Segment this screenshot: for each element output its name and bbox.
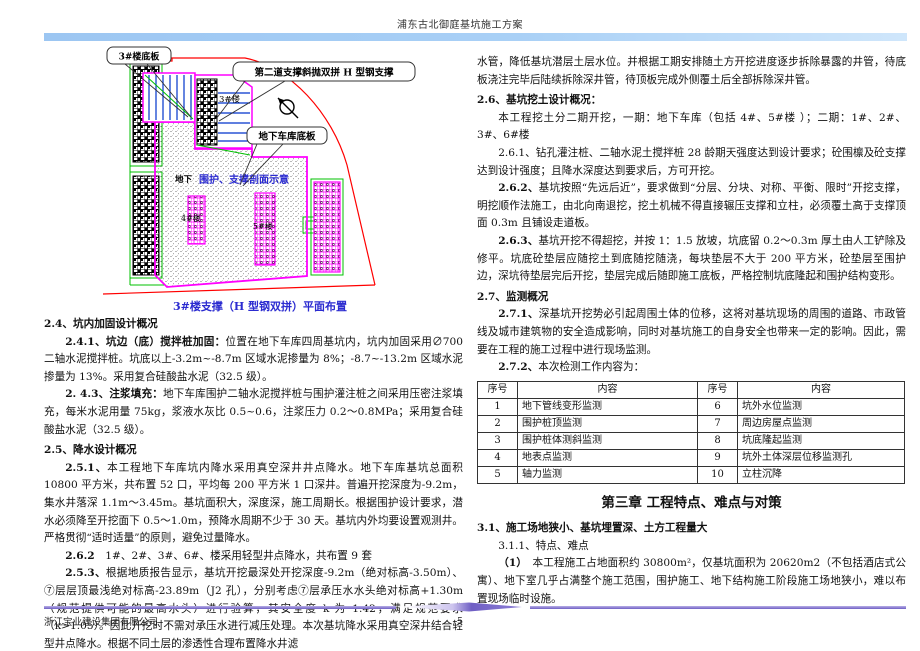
section-3-1-heading: 3.1、施工场地狭小、基坑埋置深、土方工程量大 bbox=[477, 520, 906, 538]
table-row: 5 轴力监测 10 立柱沉降 bbox=[478, 466, 905, 483]
col-header-content-2: 内容 bbox=[738, 381, 905, 398]
cell: 周边房屋点监测 bbox=[738, 415, 905, 432]
cell: 2 bbox=[478, 415, 518, 432]
right-column: 水管，降低基坑潜层土层水位。并根据工期安排随土方开挖进度逐步拆除暴露的井管，待底… bbox=[477, 54, 906, 608]
para-2-6-3-label: 2.6.3、 bbox=[498, 235, 538, 247]
cell: 10 bbox=[698, 466, 738, 483]
table-row: 4 地表点监测 9 坑外土体深层位移监测孔 bbox=[478, 449, 905, 466]
para-2-6-2-left-label: 2.6.2 bbox=[65, 550, 95, 562]
para-2-6-intro: 本工程挖土分二期开挖，一期：地下车库（包括 4#、5#楼 ）；二期：1#、2#、… bbox=[477, 110, 906, 145]
para-2-7-1: 2.7.1、深基坑开挖势必引起周围土体的位移，这将对基坑现场的周围的道路、市政管… bbox=[477, 306, 906, 359]
cell: 4 bbox=[478, 449, 518, 466]
header-accent-bar bbox=[44, 33, 907, 41]
cell: 围护桩体测斜监测 bbox=[518, 432, 698, 449]
col-header-content-1: 内容 bbox=[518, 381, 698, 398]
para-2-7-1-text: 深基坑开挖势必引起周围土体的位移，这将对基坑现场的周围的道路、市政管线及城市建筑… bbox=[477, 308, 906, 355]
header-title: 浦东古北御庭基坑施工方案 bbox=[0, 16, 920, 31]
cell: 地表点监测 bbox=[518, 449, 698, 466]
table-row: 1 地下管线变形监测 6 坑外水位监测 bbox=[478, 398, 905, 415]
para-2-6-2-text: 基坑按照“先远后近”，要求做到“分层、分块、对称、平衡、限时”开挖支撑，明挖顺作… bbox=[477, 182, 906, 229]
para-2-6-2-left: 2.6.2 1#、2#、3#、6#、楼采用轻型井点降水，共布置 9 套 bbox=[44, 548, 463, 566]
para-2-7-2-label: 2.7.2、 bbox=[498, 361, 538, 373]
para-2-6-1-text: 钻孔灌注桩、二轴水泥土搅拌桩 28 龄期天强度达到设计要求；砼围檩及砼支撑达到设… bbox=[477, 147, 906, 177]
col-header-no-2: 序号 bbox=[698, 381, 738, 398]
para-2-6-1: 2.6.1、钻孔灌注桩、二轴水泥土搅拌桩 28 龄期天强度达到设计要求；砼围檩及… bbox=[477, 145, 906, 180]
para-2-6-2-label: 2.6.2、 bbox=[498, 182, 538, 194]
para-2-6-2-left-text: 1#、2#、3#、6#、楼采用轻型井点降水，共布置 9 套 bbox=[95, 550, 372, 562]
cell: 地下管线变形监测 bbox=[518, 398, 698, 415]
section-2-4-heading: 2.4、坑内加固设计概况 bbox=[44, 316, 463, 334]
cell: 7 bbox=[698, 415, 738, 432]
building-5-label: 5#楼 bbox=[253, 221, 273, 231]
para-3-1-1-item1: （1） 本工程施工占地面积约 30800m²，仅基坑面积为 20620m2（不包… bbox=[477, 555, 906, 608]
diagram-caption: 3#楼支撑（H 型钢双拼）平面布置 bbox=[95, 298, 425, 314]
svg-text:3#楼底板: 3#楼底板 bbox=[119, 51, 161, 63]
cell: 坑外土体深层位移监测孔 bbox=[738, 449, 905, 466]
para-2-6-2: 2.6.2、基坑按照“先远后近”，要求做到“分层、分块、对称、平衡、限时”开挖支… bbox=[477, 180, 906, 233]
building-3-label: 3#楼 bbox=[219, 94, 241, 105]
site-boundary-red-bottom bbox=[103, 285, 375, 294]
site-plan-svg: 3#楼 4#楼 5#楼 地下 围护、支撑剖面示意 3 bbox=[95, 45, 425, 297]
section-2-5-heading: 2.5、降水设计概况 bbox=[44, 442, 463, 460]
building-3 bbox=[197, 79, 217, 145]
para-2-5-1: 2.5.1、本工程地下车库坑内降水采用真空深井井点降水。地下车库基坑总面积 10… bbox=[44, 460, 463, 548]
section-2-7-heading: 2.7、监测概况 bbox=[477, 289, 906, 307]
para-2-7-1-label: 2.7.1、 bbox=[498, 308, 539, 320]
cell: 3 bbox=[478, 432, 518, 449]
monitoring-table: 序号 内容 序号 内容 1 地下管线变形监测 6 坑外水位监测 2 围护桩顶监测… bbox=[477, 381, 905, 484]
north-arrow-icon bbox=[278, 98, 298, 118]
para-3-1-1-item1-label: （1） bbox=[498, 557, 522, 569]
section-3-1-1-heading: 3.1.1、特点、难点 bbox=[477, 538, 906, 556]
para-2-4-1: 2.4.1、坑边（底）搅拌桩加固：位置在地下车库四周基坑内，坑内加固采用∅700… bbox=[44, 334, 463, 387]
para-2-4-3: 2. 4.3、注浆填充：地下车库围护二轴水泥搅拌桩与围护灌注桩之间采用压密注浆填… bbox=[44, 386, 463, 439]
chapter-3-heading: 第三章 工程特点、难点与对策 bbox=[477, 495, 906, 513]
cell: 立柱沉降 bbox=[738, 466, 905, 483]
para-2-4-1-label: 2.4.1、坑边（底）搅拌桩加固： bbox=[65, 336, 225, 348]
para-3-1-1-item1-text: 本工程施工占地面积约 30800m²，仅基坑面积为 20620m2（不包括酒店式… bbox=[477, 557, 906, 604]
cell: 8 bbox=[698, 432, 738, 449]
page-number: 5 bbox=[0, 616, 920, 627]
para-2-7-2-text: 本次检测工作内容为： bbox=[538, 361, 644, 373]
section-2-6-heading: 2.6、基坑挖土设计概况： bbox=[477, 92, 906, 110]
para-2-6-3: 2.6.3、基坑开挖不得超挖，并按 1：1.5 放坡，坑底留 0.2～0.3m … bbox=[477, 233, 906, 286]
cell: 围护桩顶监测 bbox=[518, 415, 698, 432]
table-row: 3 围护桩体测斜监测 8 坑底隆起监测 bbox=[478, 432, 905, 449]
cell: 1 bbox=[478, 398, 518, 415]
para-2-7-2: 2.7.2、本次检测工作内容为： bbox=[477, 359, 906, 377]
cell: 坑底隆起监测 bbox=[738, 432, 905, 449]
underground-label: 地下 bbox=[175, 174, 193, 185]
svg-text:地下车库底板: 地下车库底板 bbox=[258, 131, 316, 143]
cell: 5 bbox=[478, 466, 518, 483]
para-2-6-1-label: 2.6.1、 bbox=[498, 147, 536, 159]
cell: 坑外水位监测 bbox=[738, 398, 905, 415]
document-page: 浦东古北御庭基坑施工方案 bbox=[0, 0, 920, 651]
site-plan-diagram: 3#楼 4#楼 5#楼 地下 围护、支撑剖面示意 3 bbox=[95, 45, 425, 297]
left-column: 2.4、坑内加固设计概况 2.4.1、坑边（底）搅拌桩加固：位置在地下车库四周基… bbox=[44, 313, 463, 651]
building-4-label: 4#楼 bbox=[181, 213, 201, 223]
cell: 轴力监测 bbox=[518, 466, 698, 483]
cell: 9 bbox=[698, 449, 738, 466]
footer-rule-right bbox=[530, 606, 906, 609]
table-row: 2 围护桩顶监测 7 周边房屋点监测 bbox=[478, 415, 905, 432]
footer-rule-left bbox=[44, 606, 396, 609]
para-2-5-3-label: 2.5.3、 bbox=[65, 567, 106, 579]
col-header-no-1: 序号 bbox=[478, 381, 518, 398]
para-2-4-3-label: 2. 4.3、注浆填充： bbox=[65, 388, 163, 400]
table-header-row: 序号 内容 序号 内容 bbox=[478, 381, 905, 398]
para-2-6-3-text: 基坑开挖不得超挖，并按 1：1.5 放坡，坑底留 0.2～0.3m 厚土由人工铲… bbox=[477, 235, 906, 282]
svg-text:第二道支撑斜抛双拼 H 型钢支撑: 第二道支撑斜抛双拼 H 型钢支撑 bbox=[254, 67, 394, 79]
para-2-5-1-text: 本工程地下车库坑内降水采用真空深井井点降水。地下车库基坑总面积 10800 平方… bbox=[44, 462, 463, 544]
building-east bbox=[314, 182, 340, 272]
cell: 6 bbox=[698, 398, 738, 415]
para-2-5-1-label: 2.5.1、 bbox=[65, 462, 107, 474]
para-continued: 水管，降低基坑潜层土层水位。并根据工期安排随土方开挖进度逐步拆除暴露的井管，待底… bbox=[477, 54, 906, 89]
